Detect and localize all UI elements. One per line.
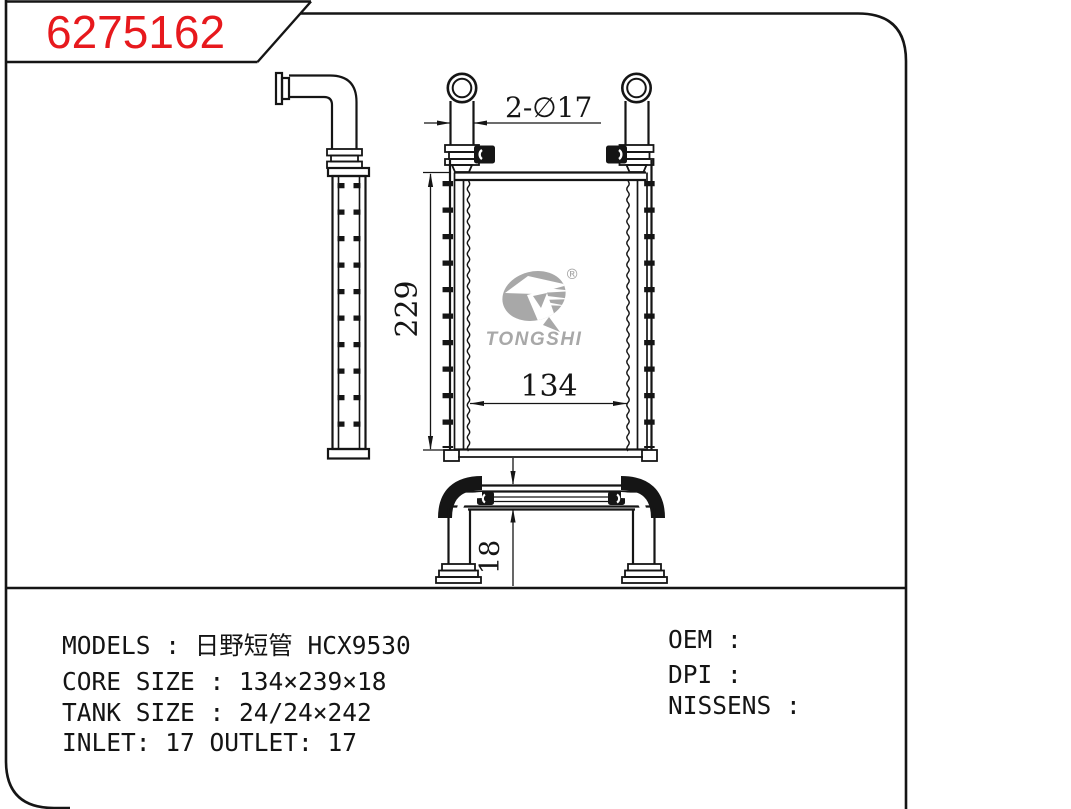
inlet-pipe-walls xyxy=(451,101,474,145)
registered-trademark-icon: ® xyxy=(567,265,578,285)
outlet-pipe-ring-inner xyxy=(627,79,646,98)
spec-area: MODELS : 日野短管 HCX9530 CORE SIZE : 134×23… xyxy=(62,625,801,757)
spec-models: MODELS : 日野短管 HCX9530 xyxy=(62,631,411,660)
inlet-clamp xyxy=(474,146,495,164)
logo-wordmark: TONGSHI xyxy=(486,329,583,350)
dimension-width: 134 xyxy=(470,369,627,406)
tongshi-logo: ® TONGSHI xyxy=(486,264,583,350)
spec-oem: OEM : xyxy=(668,625,742,654)
frame-left-edge xyxy=(6,0,70,808)
inlet-pipe-ring-inner xyxy=(453,79,472,98)
side-elbow-inner-wall xyxy=(289,97,332,149)
spec-dpi: DPI : xyxy=(668,660,742,689)
side-view xyxy=(276,73,369,459)
outlet-clamp xyxy=(606,146,627,164)
core-bottom-right-cap xyxy=(642,450,657,461)
dimension-height: 229 xyxy=(390,173,452,451)
spec-core-size: CORE SIZE : 134×239×18 xyxy=(62,667,387,696)
outlet-pipe-walls xyxy=(626,101,649,145)
dimension-ports-label: 2-∅17 xyxy=(505,91,592,124)
dimension-depth-label: 18 xyxy=(475,540,506,574)
dimension-width-label: 134 xyxy=(520,369,577,404)
spec-tank-size: TANK SIZE : 24/24×242 xyxy=(62,698,372,727)
core-left-header-lines xyxy=(455,173,464,451)
side-tank-top-cap xyxy=(328,168,369,176)
part-number: 6275162 xyxy=(46,6,225,58)
spec-nissens: NISSENS : xyxy=(668,691,801,720)
title-block: 6275162 xyxy=(6,2,311,63)
slab-gasket-lines xyxy=(493,497,609,502)
core-fin-edge-left xyxy=(467,181,469,451)
frame-top-right-edge xyxy=(300,14,906,809)
bottom-right-pipe xyxy=(621,483,667,583)
side-elbow-outer-wall xyxy=(289,76,357,150)
side-tank-inner-walls xyxy=(339,176,360,449)
side-fitting-ring xyxy=(327,149,362,156)
core-bottom-left-cap xyxy=(444,450,459,461)
spec-inlet-outlet: INLET: 17 OUTLET: 17 xyxy=(62,728,357,757)
side-tank-body xyxy=(333,176,366,449)
technical-drawing: 6275162 xyxy=(0,0,1071,809)
side-tank-bottom-cap xyxy=(328,449,369,459)
bottom-view xyxy=(436,483,667,583)
side-flange-inner xyxy=(282,78,289,99)
dimension-height-label: 229 xyxy=(390,280,425,337)
title-block-slant xyxy=(258,2,312,63)
core-fin-edge-right xyxy=(627,181,629,451)
core-right-header-lines xyxy=(638,173,648,451)
